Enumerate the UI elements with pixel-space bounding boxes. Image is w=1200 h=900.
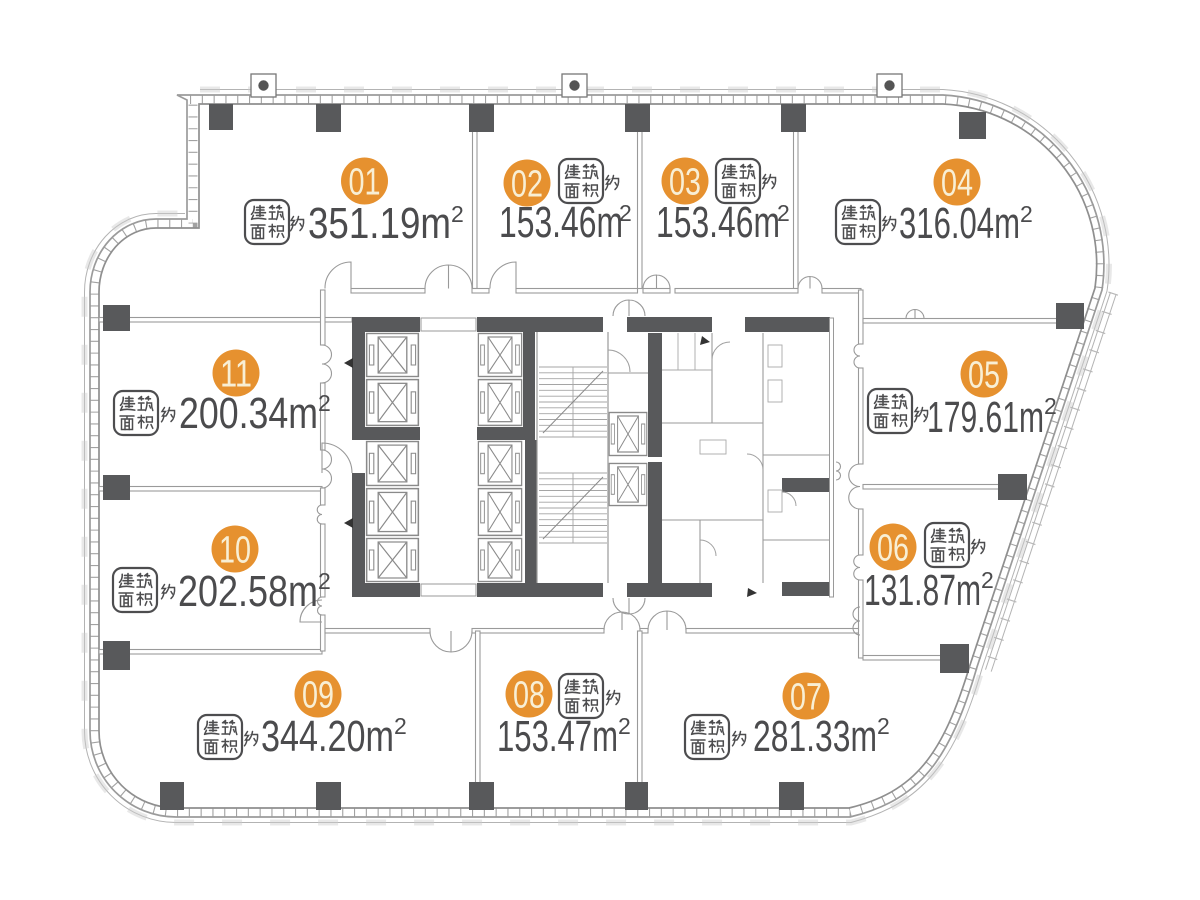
svg-text:09: 09 (302, 675, 334, 717)
svg-text:131.87m: 131.87m (864, 566, 981, 615)
svg-text:2: 2 (877, 713, 890, 739)
svg-text:202.58m: 202.58m (178, 567, 318, 616)
svg-text:179.61m: 179.61m (927, 393, 1044, 442)
svg-text:2: 2 (394, 713, 407, 739)
svg-text:2: 2 (619, 200, 632, 226)
svg-text:2: 2 (318, 390, 331, 416)
svg-text:200.34m: 200.34m (179, 389, 318, 438)
svg-text:10: 10 (219, 530, 251, 572)
svg-text:2: 2 (981, 567, 994, 593)
svg-text:05: 05 (968, 355, 1000, 397)
svg-text:2: 2 (618, 713, 631, 739)
svg-text:344.20m: 344.20m (261, 712, 394, 761)
svg-text:2: 2 (1020, 201, 1033, 227)
svg-text:281.33m: 281.33m (753, 712, 877, 761)
svg-text:153.46m: 153.46m (656, 198, 780, 247)
svg-text:2: 2 (1044, 393, 1057, 419)
svg-text:153.46m: 153.46m (499, 198, 623, 247)
svg-text:08: 08 (513, 675, 545, 717)
svg-text:351.19m: 351.19m (308, 199, 451, 248)
svg-text:01: 01 (349, 162, 381, 204)
svg-text:2: 2 (318, 568, 331, 594)
svg-text:153.47m: 153.47m (497, 712, 618, 761)
svg-text:2: 2 (777, 200, 790, 226)
svg-text:06: 06 (877, 528, 909, 570)
svg-text:2: 2 (451, 201, 464, 227)
svg-text:316.04m: 316.04m (899, 199, 1020, 248)
